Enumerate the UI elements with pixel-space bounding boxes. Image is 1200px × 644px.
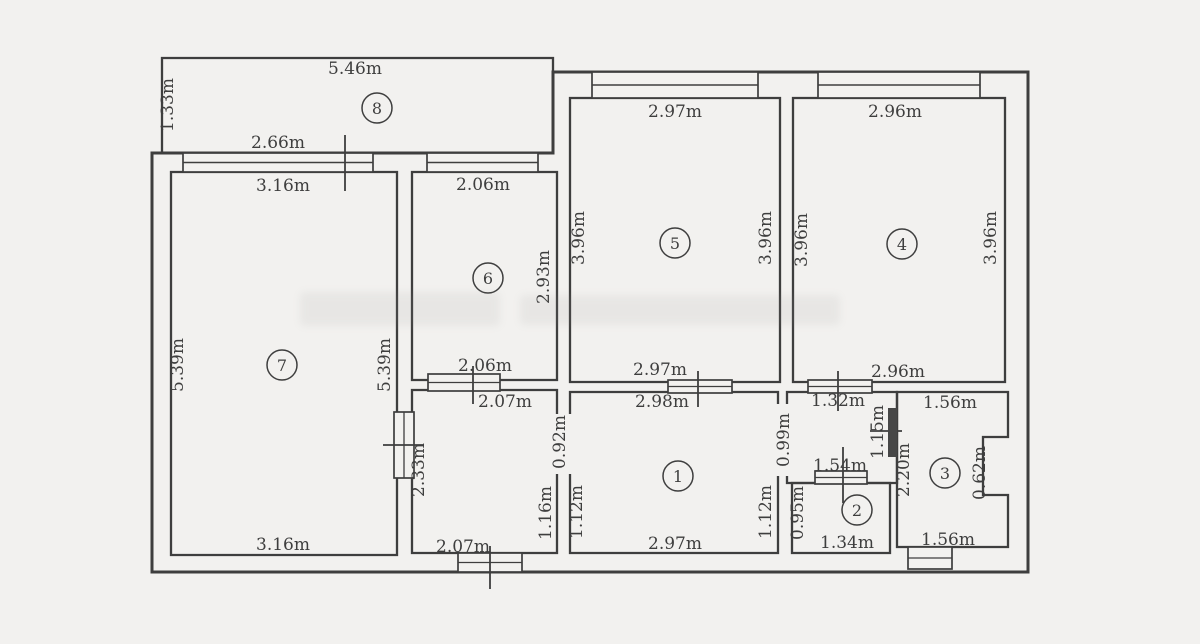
dimension-label: 3.96m — [792, 213, 812, 267]
dimension-label: 0.92m — [550, 415, 570, 469]
dimension-label: 1.15m — [868, 405, 888, 459]
dimension-label: 1.56m — [921, 530, 975, 550]
dimension-label: 2.96m — [871, 362, 925, 382]
dimension-label: 2.98m — [635, 392, 689, 412]
room-7-number: 7 — [277, 356, 287, 375]
dimension-label: 1.34m — [820, 533, 874, 553]
dimension-label: 0.62m — [970, 446, 990, 500]
dimension-label: 2.33m — [409, 443, 429, 497]
dimension-label: 1.12m — [756, 485, 776, 539]
dimension-label: 1.56m — [923, 393, 977, 413]
floor-plan: 5.46m2.66m3.16m2.06m2.97m2.96m2.06m2.97m… — [0, 0, 1200, 644]
dimension-label: 2.07m — [436, 537, 490, 557]
room-2-number: 2 — [852, 501, 862, 520]
dimension-label: 3.96m — [981, 211, 1001, 265]
dimension-label: 2.66m — [251, 133, 305, 153]
dimension-label: 0.99m — [774, 413, 794, 467]
dimension-label: 2.06m — [458, 356, 512, 376]
dimension-label: 2.06m — [456, 175, 510, 195]
dimension-label: 2.07m — [478, 392, 532, 412]
dimension-label: 5.39m — [168, 338, 188, 392]
dimension-label: 0.95m — [788, 486, 808, 540]
dimension-label: 2.97m — [648, 534, 702, 554]
dimension-label: 5.39m — [375, 338, 395, 392]
dimension-label: 1.16m — [536, 486, 556, 540]
dimension-label: 3.16m — [256, 535, 310, 555]
watermark-smudge — [520, 295, 840, 325]
dimension-label: 2.20m — [894, 443, 914, 497]
dimension-label: 1.33m — [158, 78, 178, 132]
room-5-number: 5 — [670, 234, 680, 253]
dimension-label: 1.12m — [567, 485, 587, 539]
room-1-number: 1 — [673, 467, 683, 486]
dimension-label: 3.96m — [756, 211, 776, 265]
watermark-smudge — [300, 292, 500, 326]
room-3-number: 3 — [940, 464, 950, 483]
room-6-number: 6 — [483, 269, 493, 288]
dimension-label: 3.96m — [569, 211, 589, 265]
dimension-label: 5.46m — [328, 59, 382, 79]
room-8-number: 8 — [372, 99, 382, 118]
dimension-label: 3.16m — [256, 176, 310, 196]
dimension-label: 2.97m — [648, 102, 702, 122]
dimension-label: 1.32m — [811, 391, 865, 411]
room-4-number: 4 — [897, 235, 907, 254]
dimension-label: 2.97m — [633, 360, 687, 380]
dimension-label: 2.96m — [868, 102, 922, 122]
dimension-label: 1.54m — [813, 456, 867, 476]
